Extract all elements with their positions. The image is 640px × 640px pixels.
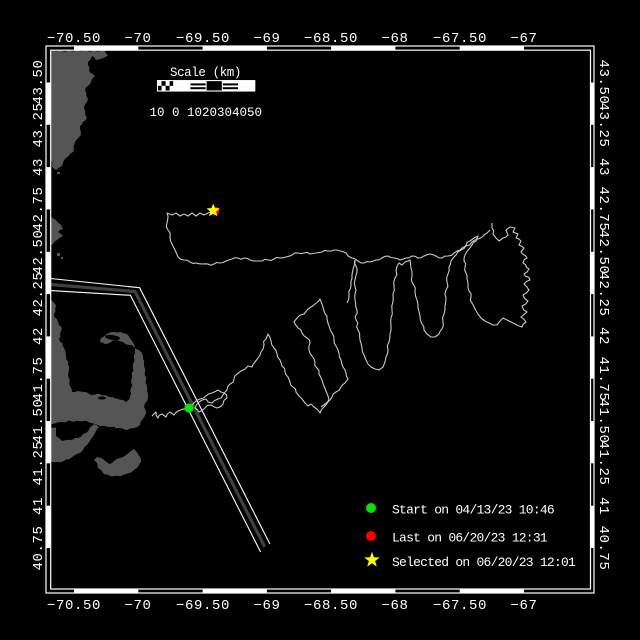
svg-text:−68.50: −68.50: [304, 31, 358, 47]
svg-text:−67.50: −67.50: [433, 598, 487, 614]
svg-text:Start on 04/13/23 10:46: Start on 04/13/23 10:46: [392, 503, 554, 518]
svg-text:41.75: 41.75: [595, 356, 611, 401]
svg-text:41.75: 41.75: [31, 356, 47, 401]
svg-text:41.25: 41.25: [31, 440, 47, 485]
svg-text:−69.50: −69.50: [176, 31, 230, 47]
svg-text:42.75: 42.75: [31, 186, 47, 231]
svg-text:−67: −67: [510, 31, 537, 47]
svg-text:−67.50: −67.50: [433, 31, 487, 47]
svg-text:−68: −68: [381, 598, 408, 614]
svg-text:42: 42: [31, 327, 47, 345]
svg-text:42.75: 42.75: [595, 186, 611, 231]
svg-text:40.75: 40.75: [595, 525, 611, 570]
svg-text:41: 41: [31, 497, 47, 515]
svg-text:−69.50: −69.50: [176, 598, 230, 614]
svg-text:−70.50: −70.50: [47, 598, 101, 614]
svg-text:−68: −68: [381, 31, 408, 47]
svg-text:42.25: 42.25: [595, 271, 611, 316]
svg-text:−67: −67: [510, 598, 537, 614]
svg-text:43: 43: [31, 158, 47, 176]
svg-text:43.25: 43.25: [31, 102, 47, 147]
svg-text:43.25: 43.25: [595, 102, 611, 147]
svg-text:43.50: 43.50: [31, 59, 47, 104]
svg-text:43: 43: [595, 158, 611, 176]
svg-text:−70: −70: [124, 31, 151, 47]
svg-text:40.75: 40.75: [31, 525, 47, 570]
svg-text:−70: −70: [124, 598, 151, 614]
svg-text:43.50: 43.50: [595, 59, 611, 104]
svg-text:−69: −69: [253, 598, 280, 614]
svg-text:42.25: 42.25: [31, 271, 47, 316]
svg-text:10 0 1020304050: 10 0 1020304050: [150, 106, 263, 120]
svg-text:−69: −69: [253, 31, 280, 47]
svg-text:Selected on 06/20/23 12:01: Selected on 06/20/23 12:01: [392, 555, 576, 570]
svg-text:41.50: 41.50: [595, 398, 611, 443]
svg-text:41.50: 41.50: [31, 398, 47, 443]
svg-text:41.25: 41.25: [595, 440, 611, 485]
svg-text:42.50: 42.50: [595, 229, 611, 274]
svg-text:−68.50: −68.50: [304, 598, 358, 614]
svg-text:−70.50: −70.50: [47, 31, 101, 47]
svg-text:Scale (km): Scale (km): [170, 66, 241, 80]
svg-text:42.50: 42.50: [31, 229, 47, 274]
svg-text:41: 41: [595, 497, 611, 515]
svg-text:Last on 06/20/23 12:31: Last on 06/20/23 12:31: [392, 531, 548, 546]
svg-text:42: 42: [595, 327, 611, 345]
